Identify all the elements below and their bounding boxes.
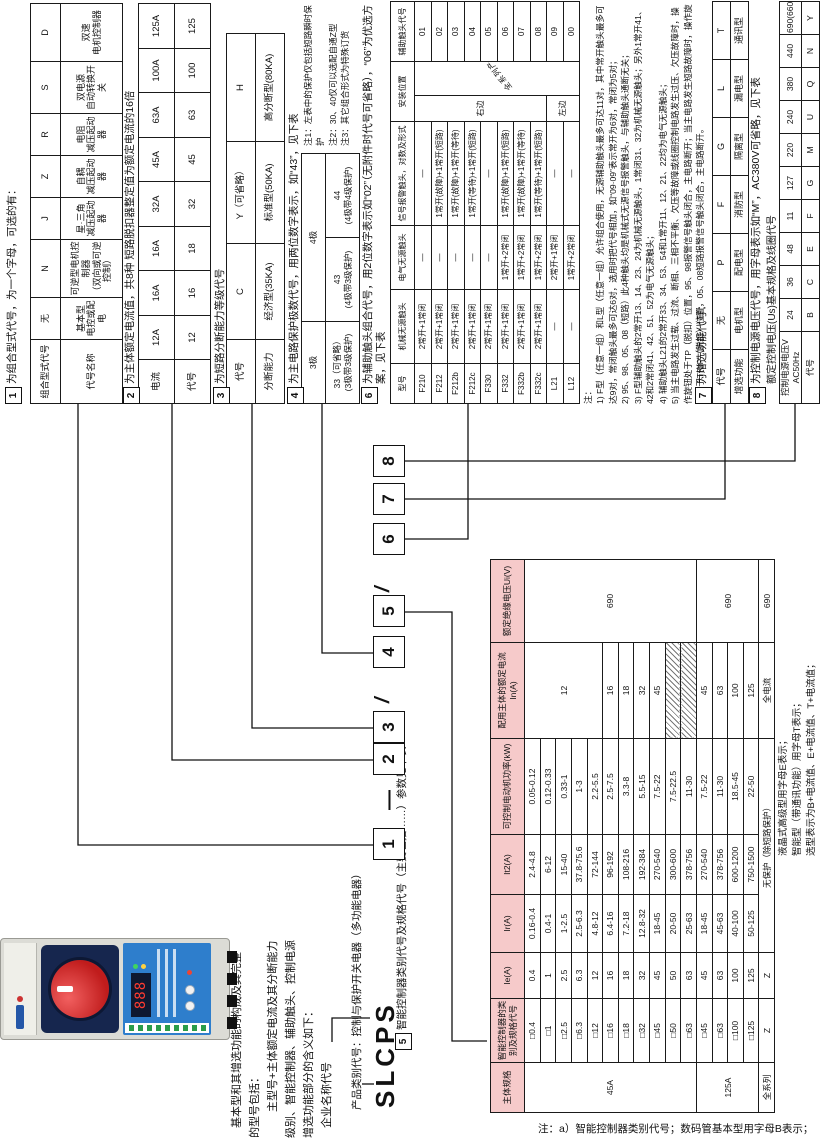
section-title: 为控制电源电压代号，用字母表示如“M”，AC380V可省略，见下表	[750, 2, 763, 384]
model-box-1: 1	[373, 828, 405, 860]
callout-line	[252, 404, 373, 728]
section-number-1: 1	[5, 387, 22, 404]
model-box-7: 7	[373, 483, 405, 515]
section-title: 为组合型式代号，为一个字母，可选的有：	[6, 0, 19, 384]
model-box-8: 8	[373, 445, 405, 477]
model-box-3: 3	[373, 711, 405, 743]
product-category-label: 产品类别代号：控制与保护开关电器（多功能电器）	[350, 810, 365, 1110]
description-line: 基本型和其增选功能的构成及其完整	[230, 952, 246, 1128]
section-number-5: 5	[395, 1033, 412, 1050]
section-number-2: 2	[123, 387, 140, 404]
section-title: 智能控制器类别代号及规格代号（主要包括……）参数见下表	[396, 610, 409, 1030]
description-line: 的型号包括：	[248, 1072, 264, 1138]
callout-line	[78, 404, 373, 845]
section-title: 为主体额定电流值，共8种 短路脱扣器整定值为额定电流的16倍	[124, 0, 137, 384]
description-line: 企业名称代号	[320, 1062, 336, 1128]
section-number-8: 8	[749, 387, 766, 404]
model-box-5: 5	[373, 595, 405, 627]
callout-line	[172, 404, 373, 760]
callout-line	[403, 404, 725, 499]
callout-line	[403, 404, 468, 539]
catalog-page: 888 SLCPS 基本型和其增选功能的构成及其完整的型号包括：主型号+主体额定…	[0, 0, 820, 1146]
section-number-4: 4	[287, 387, 304, 404]
model-slash: /	[372, 586, 395, 592]
section-title: 为辅助触头组合代号，用2位数字表示如“02”（无附件时代号可省略），“06”为优…	[362, 2, 388, 384]
voltage-subtitle: 额定控制电压(Us)基本规格及线圈代号	[766, 24, 781, 384]
rotated-catalog-page-screenshot: 888 SLCPS 基本型和其增选功能的构成及其完整的型号包括：主型号+主体额定…	[0, 0, 820, 1146]
model-box-4: 4	[373, 636, 405, 668]
controller-note-2: 智能型（带通讯功能）用字母T表示；	[791, 536, 805, 856]
description-line: 主型号+主体额定电流及其分断能力	[266, 941, 282, 1112]
section-number-6: 6	[361, 387, 378, 404]
description-line: 增选功能部分的含义如下：	[302, 1006, 318, 1138]
callout-line	[403, 612, 487, 1041]
aux-contact-notes: 注： 1) F型（任意一组）和L型（任意一组）允许组合使用，无源辅助触头最多可达…	[582, 0, 707, 404]
section-number-7: 7	[695, 387, 712, 404]
description-line: 级别、智能控制器、辅助触头、控制电源	[284, 940, 300, 1138]
model-box-2: 2	[373, 743, 405, 775]
model-dash: —	[378, 790, 401, 810]
callout-line	[403, 404, 795, 461]
pole-table-notes: 注1：左表中的保护仅包括短路瞬时保护 注2：30、40仅可以选配自通Z型 注3：…	[302, 0, 351, 146]
section-number-3: 3	[213, 387, 230, 404]
section-title: 为主电路保护极数代号，用两位数字表示，如“43”，见下表	[288, 0, 301, 384]
model-box-6: 6	[373, 523, 405, 555]
section-title: 为短路分断能力等级代号	[214, 0, 227, 384]
model-slash: /	[372, 697, 395, 703]
page-footer-note: 注：a）智能控制器类别代号；数码管基本型用字母B表示；	[538, 1121, 813, 1136]
controller-note-3: 选型表示为B+电流值、E+电流值、T+电流值；	[805, 526, 819, 856]
controller-note-1: 液晶式高级型用字母E表示；	[777, 536, 791, 856]
callout-line	[322, 404, 373, 653]
